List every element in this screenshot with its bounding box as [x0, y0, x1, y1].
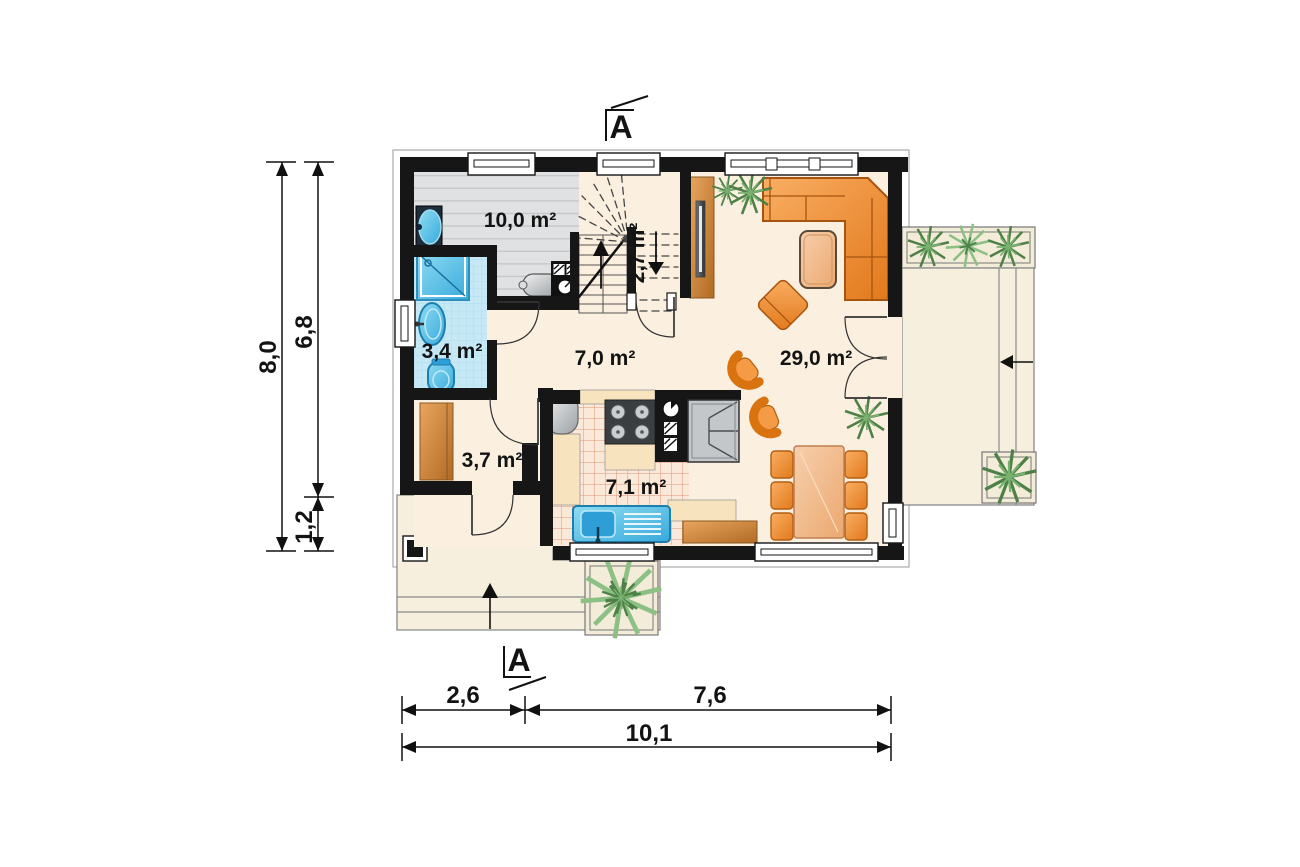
terrace-planter-bottom: [982, 450, 1037, 504]
dimensions-bottom: 2,6 7,6 10,1: [402, 682, 891, 761]
terrace: [902, 224, 1037, 505]
window: [883, 503, 903, 543]
wardrobe: [420, 403, 453, 480]
dim-left-width: 2,6: [446, 682, 479, 709]
dining-chair: [771, 451, 793, 478]
dining-set: [771, 446, 867, 540]
wall: [522, 443, 538, 483]
dim-main-height: 6,8: [291, 315, 318, 348]
toilet-icon: [428, 359, 454, 392]
dining-chair: [771, 513, 793, 540]
wall: [654, 546, 755, 560]
wall: [878, 546, 904, 560]
wall: [688, 390, 741, 400]
window: [597, 153, 660, 175]
counter: [605, 444, 655, 470]
room-label-kitchen: 7,1 m²: [606, 476, 667, 499]
wall: [540, 392, 553, 546]
counter: [668, 500, 736, 521]
wall: [538, 388, 553, 402]
window: [570, 543, 654, 561]
dim-right-width: 7,6: [693, 682, 726, 709]
section-mark-top: A: [606, 96, 648, 145]
dining-chair: [845, 513, 867, 540]
room-label-utility: 10,0 m²: [484, 209, 556, 232]
floor-plan-canvas: 10,0 m² 2,7 m² 3,4 m² 7,0 m² 29,0 m² 3,7…: [0, 0, 1300, 867]
window: [755, 543, 878, 561]
wall: [553, 390, 580, 404]
wall: [680, 172, 691, 298]
wall: [888, 157, 902, 317]
wall: [414, 245, 489, 257]
wall: [400, 388, 490, 400]
wall: [888, 398, 902, 503]
stove-icon: [605, 400, 655, 444]
room-label-stairwell: 2,7 m²: [626, 223, 649, 284]
section-letter-top: A: [609, 109, 632, 145]
wall: [487, 296, 579, 310]
window-triple: [725, 153, 858, 175]
floor-plan-drawing: 10,0 m² 2,7 m² 3,4 m² 7,0 m² 29,0 m² 3,7…: [0, 0, 1300, 867]
laundry-sink-icon: [416, 206, 442, 248]
window: [395, 300, 415, 347]
door-threshold: [888, 315, 902, 398]
dimension-arrows: [276, 162, 324, 551]
fireplace: [688, 400, 739, 462]
coffee-table: [800, 231, 836, 288]
dim-total-height: 8,0: [255, 340, 282, 373]
wall: [400, 481, 472, 495]
oven-column-icons: [663, 401, 679, 451]
porch-planter: [581, 558, 662, 639]
tv-cabinet: [690, 177, 714, 298]
room-label-hall: 7,0 m²: [575, 347, 636, 370]
wall: [487, 245, 497, 302]
shower-icon: [417, 252, 469, 300]
dining-chair: [845, 451, 867, 478]
sideboard: [683, 521, 757, 543]
room-label-bathroom: 3,4 m²: [422, 340, 483, 363]
dining-chair: [845, 482, 867, 509]
wall: [553, 546, 570, 560]
window: [468, 153, 535, 175]
section-mark-bottom: A: [504, 642, 546, 690]
section-letter-bottom: A: [507, 642, 530, 678]
dimensions-left: 8,0 6,8 1,2: [255, 162, 334, 551]
kitchen-sink-icon: [573, 506, 670, 544]
dining-chair: [771, 482, 793, 509]
room-label-living: 29,0 m²: [780, 347, 852, 370]
dim-porch-height: 1,2: [291, 510, 318, 543]
wall: [570, 232, 579, 310]
room-label-vestibule: 3,7 m²: [462, 449, 523, 472]
dim-total-width: 10,1: [626, 720, 673, 747]
